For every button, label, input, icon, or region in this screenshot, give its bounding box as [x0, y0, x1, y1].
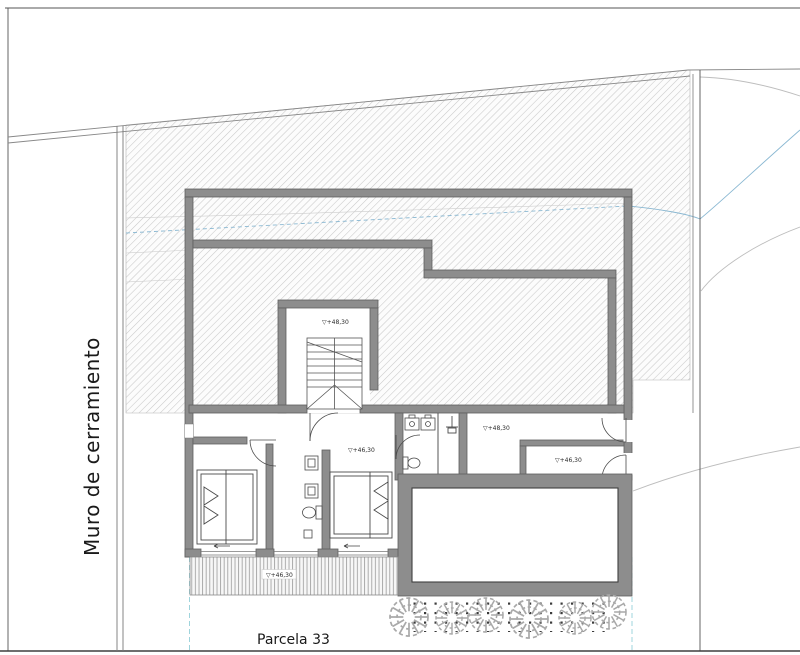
bed-icon [197, 470, 257, 544]
level-label-stairwell: ▽+48,30 [322, 319, 349, 326]
site-plan-page: Muro de cerramiento Parcela 33 ▽+48,30 ▽… [0, 0, 800, 655]
bed-icon [330, 472, 392, 538]
level-label-right-room: ▽+46,30 [555, 457, 582, 464]
site-plan-drawing: Muro de cerramiento Parcela 33 ▽+48,30 ▽… [0, 0, 800, 655]
staircase [307, 338, 362, 409]
parcel-label: Parcela 33 [257, 632, 330, 648]
level-label-terrace: ▽+46,30 [266, 572, 293, 579]
enclosure-wall-label: Muro de cerramiento [80, 337, 104, 556]
swimming-pool [398, 474, 632, 596]
level-label-hall: ▽+46,30 [348, 447, 375, 454]
level-label-right-hall: ▽+48,30 [483, 425, 510, 432]
toilet-icon [403, 457, 420, 469]
